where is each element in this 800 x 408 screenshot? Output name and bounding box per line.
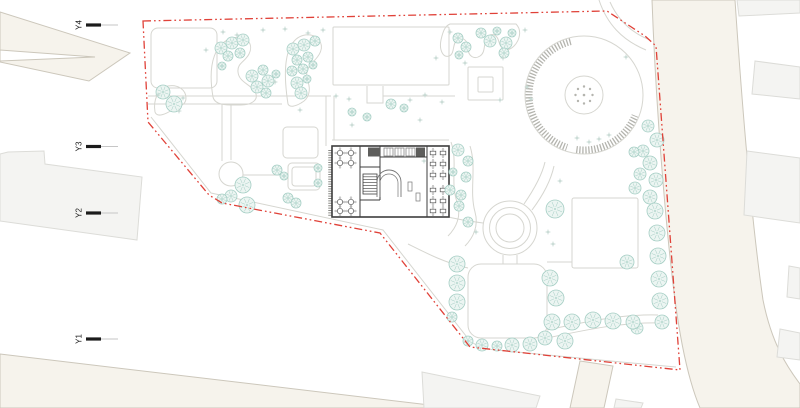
shrub-icon: [346, 96, 352, 102]
tree-icon: [650, 133, 664, 147]
tree-icon: [400, 104, 408, 112]
tree-icon: [476, 28, 486, 38]
tree-icon: [454, 201, 464, 211]
shrub-icon: [220, 29, 226, 35]
tree-icon: [484, 35, 496, 47]
tree-icon: [291, 198, 301, 208]
grid-marker-extension-line: [101, 213, 118, 214]
tree-icon: [386, 99, 396, 109]
tree-icon: [548, 290, 564, 306]
site-plan: Y4Y3Y2Y1: [0, 0, 800, 408]
tree-icon: [287, 43, 299, 55]
tree-icon: [239, 197, 255, 213]
tree-icon: [629, 147, 639, 157]
tree-icon: [523, 337, 537, 351]
tree-icon: [449, 168, 457, 176]
tree-icon: [626, 315, 640, 329]
tree-icon: [447, 312, 457, 322]
tree-icon: [287, 66, 297, 76]
site-plan-canvas: Y4Y3Y2Y1: [0, 0, 800, 408]
tree-icon: [314, 164, 322, 172]
tree-icon: [226, 37, 238, 49]
tree-icon: [546, 200, 564, 218]
tree-icon: [455, 51, 463, 59]
tree-icon: [461, 172, 471, 182]
tree-icon: [218, 62, 226, 70]
tree-icon: [505, 338, 519, 352]
shrub-icon: [349, 122, 355, 128]
shrub-icon: [497, 97, 503, 103]
tree-icon: [298, 64, 308, 74]
grid-marker-bar: [86, 337, 101, 340]
tree-icon: [652, 293, 668, 309]
tree-icon: [649, 225, 665, 241]
tree-icon: [309, 61, 317, 69]
tree-icon: [650, 248, 666, 264]
shrub-icon: [407, 97, 413, 103]
shrub-icon: [557, 178, 563, 184]
shrub-icon: [203, 47, 209, 53]
tree-icon: [298, 39, 310, 51]
tree-icon: [461, 42, 471, 52]
tree-icon: [655, 315, 669, 329]
tree-icon: [237, 34, 249, 46]
grid-marker-label: Y2: [75, 208, 84, 218]
tree-icon: [629, 182, 641, 194]
tree-icon: [292, 55, 302, 65]
shrub-icon: [447, 29, 453, 35]
tree-icon: [647, 203, 663, 219]
grid-marker-y4: Y4: [75, 20, 119, 30]
grid-marker-y1: Y1: [75, 334, 119, 344]
tree-icon: [314, 179, 322, 187]
tree-icon: [272, 70, 280, 78]
tree-icon: [295, 87, 307, 99]
tree-icon: [261, 88, 271, 98]
tree-icon: [452, 144, 464, 156]
tree-icon: [500, 37, 512, 49]
grid-marker-y3: Y3: [75, 141, 119, 151]
shrub-icon: [417, 117, 423, 123]
grid-marker-label: Y1: [75, 334, 84, 344]
shrub-icon: [297, 107, 303, 113]
grid-marker-label: Y4: [75, 20, 84, 30]
shrub-icon: [433, 55, 439, 61]
tree-icon: [651, 271, 667, 287]
grid-marker-bar: [86, 23, 101, 26]
tree-icon: [348, 108, 356, 116]
tree-icon: [463, 217, 473, 227]
tree-icon: [303, 75, 311, 83]
grid-marker-label: Y3: [75, 141, 84, 151]
tree-icon: [634, 168, 646, 180]
shrub-icon: [282, 26, 288, 32]
tree-icon: [449, 294, 465, 310]
shrub-icon: [550, 241, 556, 247]
shrub-icon: [522, 27, 528, 33]
tree-icon: [363, 113, 371, 121]
grid-marker-bar: [86, 211, 101, 214]
tree-icon: [649, 173, 663, 187]
tree-icon: [564, 314, 580, 330]
tree-icon: [508, 29, 516, 37]
grid-marker-extension-line: [101, 25, 118, 26]
shrub-icon: [439, 99, 445, 105]
tree-icon: [166, 96, 182, 112]
grid-marker-extension-line: [101, 146, 118, 147]
tree-icon: [246, 70, 258, 82]
shrub-icon: [260, 27, 266, 33]
tree-icon: [499, 48, 509, 58]
tree-icon: [280, 172, 288, 180]
shrub-icon: [462, 60, 468, 66]
tree-icon: [557, 333, 573, 349]
grid-marker-bar: [86, 145, 101, 148]
tree-icon: [493, 27, 501, 35]
tree-icon: [643, 190, 657, 204]
tree-icon: [585, 312, 601, 328]
shrub-icon: [422, 92, 428, 98]
tree-icon: [310, 36, 320, 46]
tree-icon: [303, 52, 313, 62]
tree-icon: [642, 120, 654, 132]
tree-icon: [605, 313, 621, 329]
tree-icon: [449, 275, 465, 291]
tree-icon: [542, 270, 558, 286]
tree-icon: [445, 185, 455, 195]
tree-icon: [643, 156, 657, 170]
tree-icon: [449, 256, 465, 272]
tree-icon: [223, 51, 233, 61]
shrub-icon: [320, 27, 326, 33]
tree-icon: [620, 255, 634, 269]
tree-icon: [544, 314, 560, 330]
shrub-icon: [545, 229, 551, 235]
tree-icon: [235, 48, 245, 58]
grid-marker-extension-line: [101, 339, 118, 340]
fountain: [483, 201, 537, 255]
tree-icon: [456, 190, 466, 200]
main-building-plan: [330, 146, 449, 217]
circular-plaza: [525, 36, 643, 154]
tree-icon: [235, 177, 251, 193]
tree-icon: [463, 156, 473, 166]
tree-icon: [258, 65, 268, 75]
tree-icon: [262, 75, 274, 87]
tree-icon: [538, 331, 552, 345]
tree-icon: [453, 33, 463, 43]
